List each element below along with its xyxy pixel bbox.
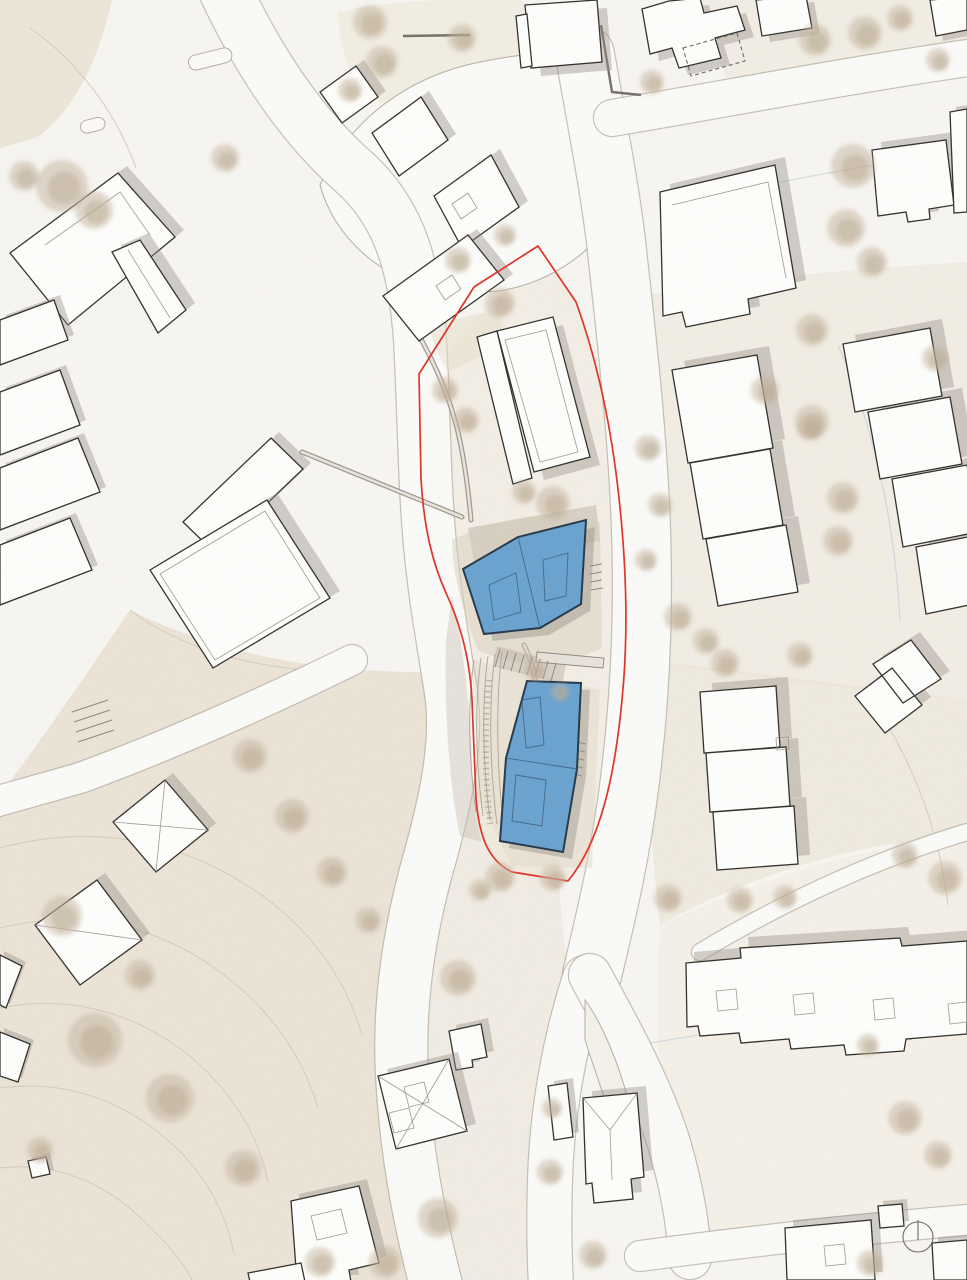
site-plan <box>0 0 967 1280</box>
site-plan-canvas <box>0 0 967 1280</box>
paper-grain <box>0 0 967 1280</box>
